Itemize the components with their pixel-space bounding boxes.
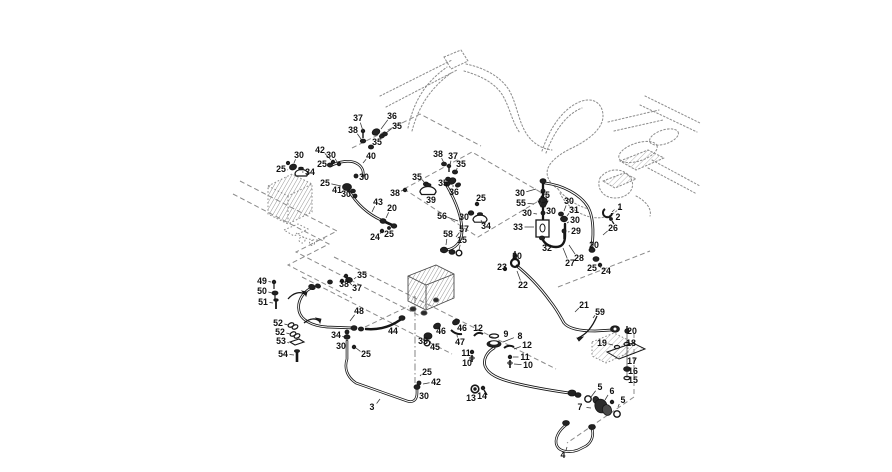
fittings [294,350,299,353]
callout-label-10[interactable]: 10 [462,358,472,368]
callout-label-25[interactable]: 25 [320,178,330,188]
fittings [541,211,545,215]
callout-label-24[interactable]: 24 [601,266,611,276]
callout-label-14[interactable]: 14 [477,391,487,401]
callout-leader [526,189,536,192]
tube-3 [346,341,417,402]
tube-3 [346,341,417,402]
fittings [354,174,358,178]
callout-leader [618,404,619,407]
callout-label-36[interactable]: 36 [449,187,459,197]
callout-label-30[interactable]: 30 [515,188,525,198]
callout-label-15[interactable]: 15 [628,375,638,385]
fittings [610,400,614,404]
fittings [562,229,566,233]
callout-label-12[interactable]: 12 [473,323,483,333]
callout-label-20[interactable]: 20 [589,240,599,250]
oil-cooler-reference [299,237,305,243]
callout-label-34[interactable]: 34 [331,330,341,340]
fittings [585,396,591,402]
callout-label-39[interactable]: 39 [426,195,436,205]
callout-label-20[interactable]: 20 [627,326,637,336]
callout-label-25[interactable]: 25 [317,159,327,169]
callout-label-53[interactable]: 53 [276,336,286,346]
fittings [274,299,278,301]
callout-leader [517,271,520,280]
oil-cooler-reference [268,174,326,246]
callout-label-17[interactable]: 17 [627,356,637,366]
callout-label-35[interactable]: 35 [418,336,428,346]
callout-label-13[interactable]: 13 [466,393,476,403]
callout-leader [603,231,608,235]
callout-leader [612,210,614,212]
valve-block [421,311,427,315]
fittings [536,220,549,237]
machine-outline-reference [464,71,520,133]
callout-label-35[interactable]: 35 [392,121,402,131]
fittings [344,335,350,339]
callout-leader [567,222,569,223]
callout-leader [591,391,596,397]
fittings [539,236,544,240]
callout-leader [564,205,566,211]
callout-label-34[interactable]: 34 [481,221,491,231]
callout-label-47[interactable]: 47 [455,337,465,347]
callout-leader [514,346,521,349]
fittings [589,425,596,430]
callout-leader [459,245,460,250]
callout-label-46[interactable]: 46 [457,323,467,333]
callout-label-35[interactable]: 35 [438,178,448,188]
fittings [481,386,485,390]
hose-21 [517,266,612,331]
fittings [293,333,300,339]
fittings [578,316,597,338]
callout-label-25[interactable]: 25 [476,193,486,203]
machine-outline-reference [412,73,451,131]
callout-leader [284,324,288,325]
callout-label-38[interactable]: 38 [348,125,358,135]
hose-21 [517,266,612,331]
callout-leader [269,302,273,303]
callout-label-58[interactable]: 58 [443,229,453,239]
callout-leader [289,354,294,355]
machine-outline-reference [466,64,552,150]
fittings [452,170,457,174]
fittings [316,318,321,323]
fittings [272,280,276,284]
callout-label-30[interactable]: 30 [459,212,469,222]
callout-leader [446,239,447,245]
callout-label-31[interactable]: 31 [569,205,579,215]
callout-leader [286,333,290,334]
callout-leader [381,120,388,129]
callout-label-30[interactable]: 30 [341,189,351,199]
valve-block [410,307,416,311]
fittings [456,250,462,256]
callout-label-25[interactable]: 25 [384,229,394,239]
fittings [559,212,564,216]
callout-label-25[interactable]: 25 [361,349,371,359]
machine-outline-reference [652,160,700,186]
fittings [291,324,298,330]
callout-leader [377,399,380,403]
callout-label-19[interactable]: 19 [597,338,607,348]
machine-outline-reference [380,60,452,96]
callout-label-48[interactable]: 48 [354,306,364,316]
callout-label-30[interactable]: 30 [570,215,580,225]
machine-outline-reference [444,50,468,69]
machine-outline-reference [614,120,663,131]
callout-label-43[interactable]: 43 [373,197,383,207]
callout-label-30[interactable]: 30 [546,206,556,216]
parts-diagram-page: 3738363535403025344230252530413038373535… [0,0,892,472]
callout-label-21[interactable]: 21 [579,300,589,310]
fittings [360,139,365,143]
oil-cooler-reference [296,233,326,240]
callout-label-37[interactable]: 37 [352,283,362,293]
fittings [290,339,304,345]
callout-label-32[interactable]: 32 [542,243,552,253]
callout-label-59[interactable]: 59 [595,307,605,317]
callout-leader [422,180,424,182]
fittings [358,327,363,331]
fittings [504,346,514,348]
fittings [351,326,357,331]
callout-label-2[interactable]: 2 [616,212,621,222]
fittings [490,334,499,338]
fittings [470,350,474,354]
callout-label-1[interactable]: 1 [618,202,623,212]
fittings [540,179,546,184]
fittings [614,411,620,417]
callout-label-30[interactable]: 30 [294,150,304,160]
fittings [286,161,289,164]
callout-label-25[interactable]: 25 [540,190,550,200]
callout-label-37[interactable]: 37 [353,113,363,123]
machine-outline-reference [636,196,650,216]
fittings [420,187,436,195]
callout-leader [566,447,567,451]
fittings [351,189,356,193]
fittings [610,218,613,221]
callout-label-26[interactable]: 26 [608,223,618,233]
callout-label-42[interactable]: 42 [431,377,441,387]
fittings [399,316,405,321]
callout-leader [586,407,591,408]
callout-label-33[interactable]: 33 [513,222,523,232]
valve-block [408,265,454,315]
callout-label-11[interactable]: 11 [461,348,470,358]
callout-label-29[interactable]: 29 [571,226,581,236]
callout-label-30[interactable]: 30 [359,172,369,182]
callout-leader [380,232,381,234]
callout-label-28[interactable]: 28 [574,253,584,263]
callout-label-30[interactable]: 30 [419,391,429,401]
callout-label-35[interactable]: 35 [357,270,367,280]
fittings [344,274,348,278]
fittings [353,194,357,198]
callout-label-12[interactable]: 12 [522,340,532,350]
machine-outline-reference [608,110,659,122]
callout-label-55[interactable]: 55 [516,198,526,208]
machine-outline-reference [640,105,697,132]
callout-label-6[interactable]: 6 [610,386,615,396]
callout-label-30[interactable]: 30 [326,150,336,160]
callout-label-3[interactable]: 3 [370,402,375,412]
callout-label-18[interactable]: 18 [626,338,636,348]
fittings [328,280,333,284]
callout-leader [423,383,430,384]
callout-leader [450,161,451,165]
callout-label-50[interactable]: 50 [257,286,267,296]
callout-label-20[interactable]: 20 [387,203,397,213]
callout-leader [268,292,272,293]
fittings [315,283,321,289]
callout-leader [354,277,356,279]
machine-outline-reference [603,173,636,188]
callout-leader [533,213,537,214]
callout-leader [401,190,403,191]
fittings [289,163,298,171]
callout-label-45[interactable]: 45 [430,342,440,352]
oil-cooler-reference [284,224,308,236]
callout-leader [514,364,522,365]
fittings [272,128,645,430]
callout-label-7[interactable]: 7 [578,402,583,412]
fittings [561,216,568,222]
callout-leader [287,342,289,343]
callout-leader [527,203,534,204]
frame-dashed-lines [240,181,420,316]
callout-label-15[interactable]: 15 [457,235,467,245]
callout-label-27[interactable]: 27 [565,258,575,268]
callout-label-5[interactable]: 5 [598,382,603,392]
callout-label-35[interactable]: 35 [372,137,382,147]
machine-outline-reference [648,168,697,194]
callout-label-35[interactable]: 35 [412,172,422,182]
callout-label-24[interactable]: 24 [370,232,380,242]
machine-outline-reference [648,126,681,149]
callout-label-40[interactable]: 40 [366,151,376,161]
fittings [614,328,617,331]
fittings [563,421,570,426]
callout-label-51[interactable]: 51 [258,297,268,307]
callout-label-56[interactable]: 56 [437,211,447,221]
callout-label-22[interactable]: 22 [518,280,528,290]
callout-label-38[interactable]: 38 [339,279,349,289]
callout-label-25[interactable]: 25 [422,367,432,377]
fittings [391,224,397,228]
callout-leader [356,348,360,351]
fittings [337,162,341,166]
fittings [540,224,545,232]
callout-label-20[interactable]: 20 [512,251,522,261]
fittings [272,291,278,295]
fittings [477,213,482,216]
fittings [593,257,599,262]
fittings [508,355,512,359]
callout-label-4[interactable]: 4 [561,450,566,460]
fittings [490,341,498,345]
callout-label-42[interactable]: 42 [315,145,325,155]
callout-label-9[interactable]: 9 [504,329,509,339]
machine-outline-reference [645,96,700,123]
callout-label-38[interactable]: 38 [433,149,443,159]
callout-label-44[interactable]: 44 [388,326,398,336]
callout-leader [386,212,389,218]
fittings [575,393,581,398]
parts-diagram-canvas: 3738363535403025344230252530413038373535… [0,0,892,472]
callout-leader [372,206,375,212]
callout-label-46[interactable]: 46 [436,326,446,336]
fittings [440,247,447,253]
fittings [474,333,483,336]
oil-cooler-reference [268,174,312,224]
fittings [299,167,304,170]
callout-leader [563,248,567,258]
callout-label-34[interactable]: 34 [305,167,315,177]
fittings [425,183,431,186]
callout-leader [605,395,608,400]
fittings [577,337,583,341]
fittings [352,345,356,349]
callout-label-54[interactable]: 54 [278,349,288,359]
fittings [380,219,386,224]
callout-label-35[interactable]: 35 [456,159,466,169]
callout-label-30[interactable]: 30 [522,208,532,218]
fittings [403,188,407,192]
callout-label-30[interactable]: 30 [336,341,346,351]
valve-block [408,265,454,310]
fittings [345,330,349,334]
callout-label-38[interactable]: 38 [390,188,400,198]
callout-label-49[interactable]: 49 [257,276,267,286]
callout-label-10[interactable]: 10 [523,360,533,370]
callout-label-5[interactable]: 5 [621,395,626,405]
valve-block [434,298,439,302]
fittings [468,211,474,215]
fittings [474,388,477,391]
callout-label-25[interactable]: 25 [276,164,286,174]
fittings [449,250,455,255]
callout-label-23[interactable]: 23 [497,262,507,272]
fittings [417,381,421,385]
callout-label-57[interactable]: 57 [459,224,469,234]
machine-outline-reference [620,150,664,170]
callout-label-25[interactable]: 25 [587,263,597,273]
callout-label-36[interactable]: 36 [387,111,397,121]
